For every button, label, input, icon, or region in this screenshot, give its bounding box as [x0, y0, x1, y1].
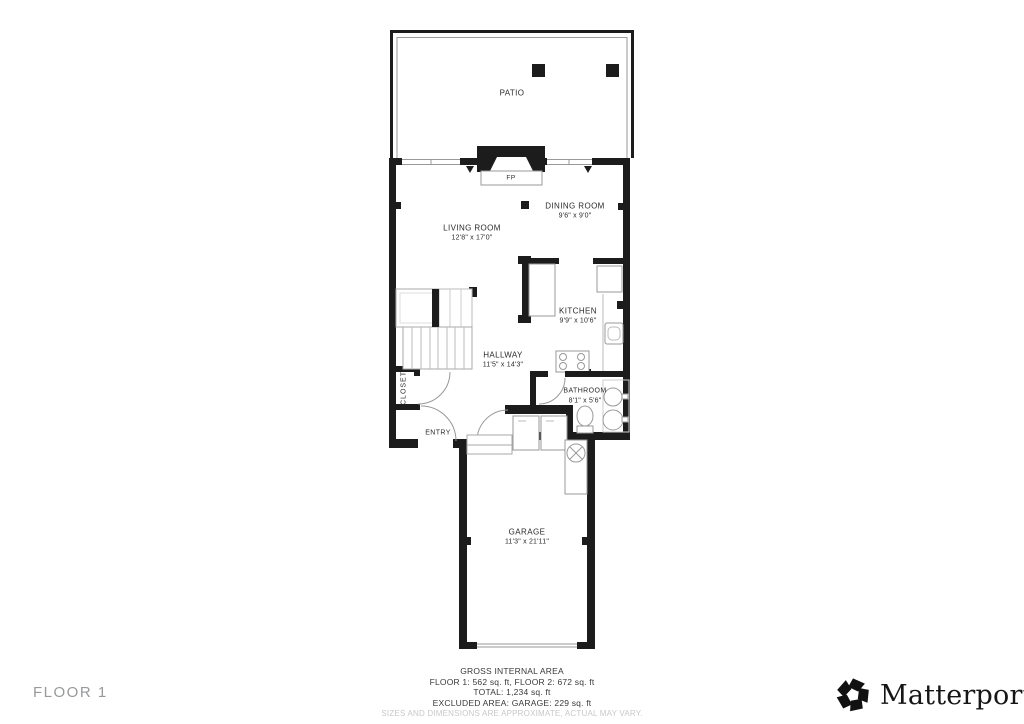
room-label-living-room: LIVING ROOM 12'8" x 17'0" — [443, 224, 501, 243]
floor-indicator: FLOOR 1 — [33, 684, 108, 701]
garage-door-icon — [477, 642, 577, 649]
matterport-logo: Matterport® — [834, 676, 1024, 714]
matterport-pinwheel-icon — [834, 676, 872, 714]
stove-icon — [556, 351, 589, 372]
floor-plan-page: PATIO LIVING ROOM 12'8" x 17'0" DINING R… — [0, 0, 1024, 724]
summary-excluded: EXCLUDED AREA: GARAGE: 229 sq. ft — [381, 698, 642, 709]
summary-total: TOTAL: 1,234 sq. ft — [381, 687, 642, 698]
sink-icon — [604, 388, 622, 406]
room-dims-bathroom: 8'1" x 5'6" — [563, 397, 606, 406]
summary-disclaimer: SIZES AND DIMENSIONS ARE APPROXIMATE, AC… — [381, 709, 642, 720]
room-label-patio: PATIO — [500, 89, 525, 98]
summary-floors: FLOOR 1: 562 sq. ft, FLOOR 2: 672 sq. ft — [381, 677, 642, 688]
step-icon — [467, 435, 512, 445]
sink-icon — [603, 410, 623, 430]
matterport-wordmark: Matterport® — [880, 680, 1024, 711]
summary-title: GROSS INTERNAL AREA — [381, 666, 642, 677]
step-icon — [467, 445, 512, 454]
counter-icon — [529, 264, 555, 316]
room-dims-garage: 11'3" x 21'11" — [505, 538, 549, 547]
room-label-kitchen: KITCHEN 9'9" x 10'6" — [559, 307, 597, 326]
room-dims-living-room: 12'8" x 17'0" — [443, 234, 501, 243]
room-dims-kitchen: 9'9" x 10'6" — [559, 317, 597, 326]
fireplace-label: FP — [506, 174, 515, 183]
room-label-entry: ENTRY — [425, 429, 451, 438]
fridge-icon — [597, 266, 622, 292]
water-heater-icon — [567, 444, 585, 462]
patio-post-icon — [606, 64, 619, 77]
room-label-closet: CLOSET — [400, 371, 409, 405]
room-label-bathroom: BATHROOM 8'1" x 5'6" — [563, 387, 606, 406]
room-label-hallway: HALLWAY 11'5" x 14'3" — [483, 351, 523, 370]
room-label-garage: GARAGE 11'3" x 21'11" — [505, 528, 549, 547]
room-dims-hallway: 11'5" x 14'3" — [483, 361, 523, 370]
room-dims-dining-room: 9'6" x 9'0" — [545, 212, 605, 221]
room-label-dining-room: DINING ROOM 9'6" x 9'0" — [545, 202, 605, 221]
patio-post-icon — [532, 64, 545, 77]
toilet-icon — [577, 406, 593, 433]
area-summary: GROSS INTERNAL AREA FLOOR 1: 562 sq. ft,… — [381, 666, 642, 720]
staircase-icon — [396, 289, 472, 369]
